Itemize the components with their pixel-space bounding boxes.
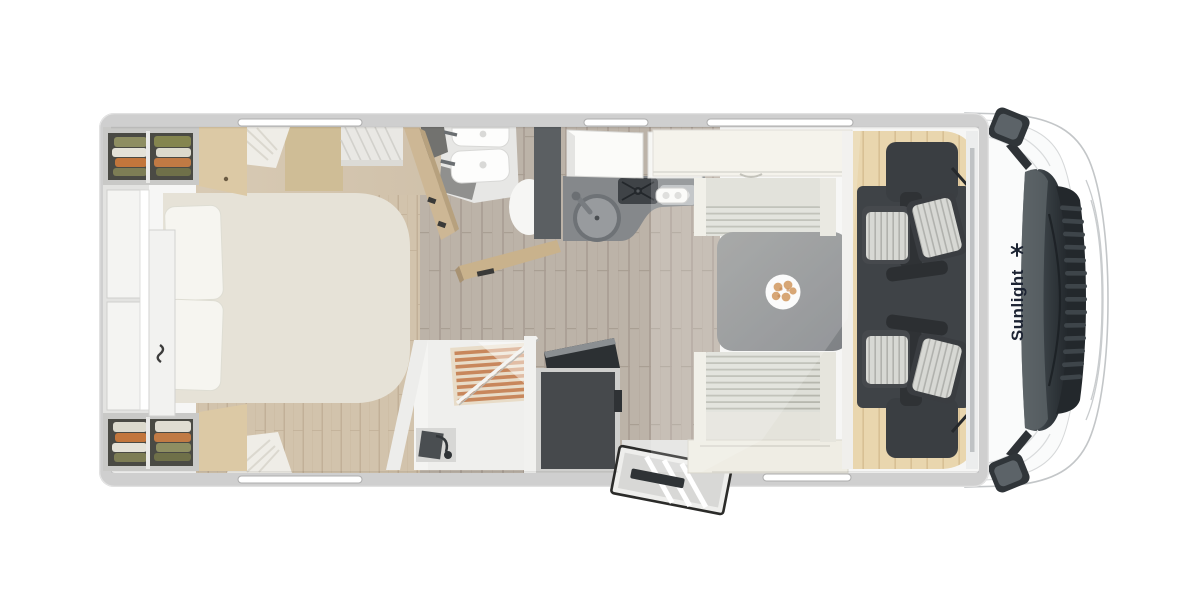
svg-text:Sunlight: Sunlight <box>1008 269 1027 341</box>
